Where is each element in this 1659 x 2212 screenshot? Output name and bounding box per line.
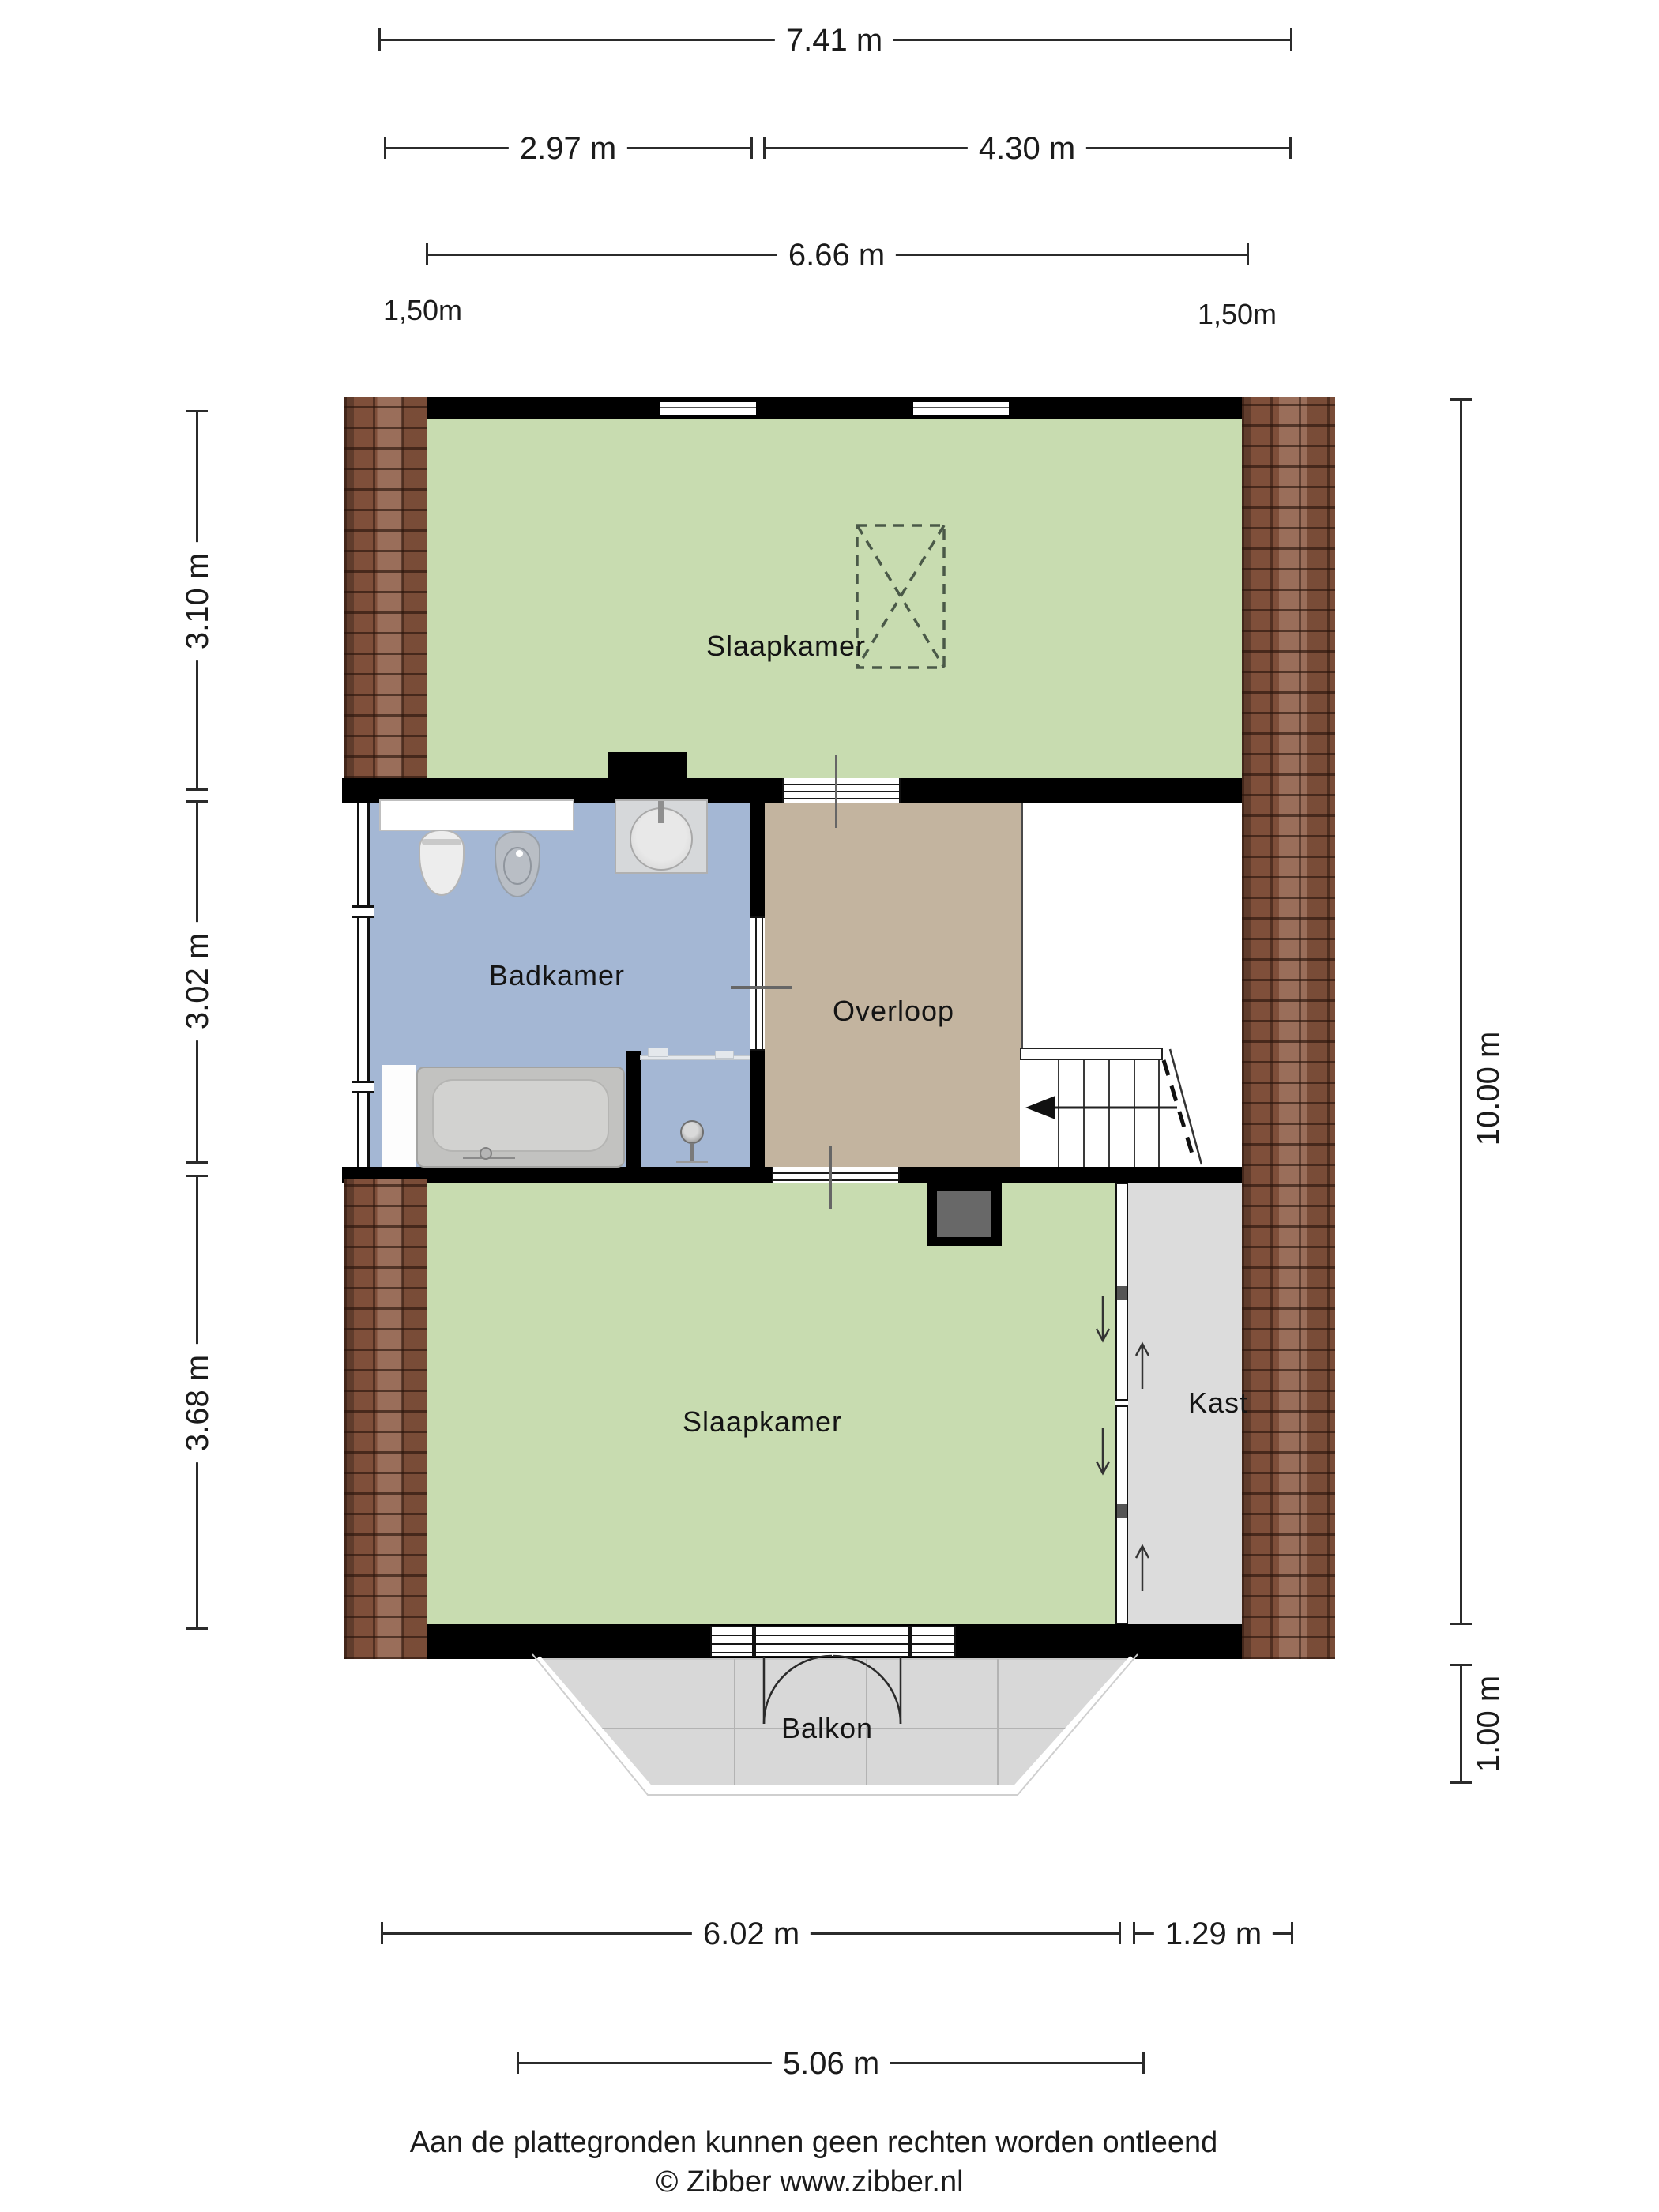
dim-label-top-total: 7.41 m [775,24,893,56]
window-top-2 [911,400,1011,417]
dim-label-bottom-balcony: 5.06 m [772,2048,890,2079]
bedroom-top-floor [427,419,1248,778]
dim-tick [384,137,386,159]
dim-tick [1119,1922,1121,1944]
wall-top [379,397,1292,419]
shower-valve-icon [715,1051,734,1059]
dim-tick [426,243,428,265]
dim-tick [1133,1922,1135,1944]
dim-tick [186,1175,208,1177]
room-label-bedroom-bottom: Slaapkamer [683,1408,842,1436]
landing-floor [765,803,1022,1167]
dim-label-right-total: 10.00 m [1473,1021,1504,1157]
dim-label-knee-right: 1,50m [1187,300,1288,329]
stairwell-edge [1021,803,1023,1049]
stair-tread [1134,1060,1135,1167]
door-bathroom [750,916,765,1051]
room-label-landing: Overloop [833,997,954,1025]
window-transom-1 [352,905,374,918]
door-mullion [752,1626,756,1657]
room-label-balcony: Balkon [781,1714,873,1743]
dim-tick [1291,1922,1293,1944]
door-handle-icon [1117,1504,1127,1518]
door-tick [835,755,837,828]
stairs-landing [1020,1048,1163,1060]
dim-label-right-balcony: 1.00 m [1473,1665,1504,1783]
roof-strip-left-bottom [344,1179,427,1659]
dim-line-right-balcony [1460,1665,1462,1783]
wall-bath-stub [626,1051,641,1167]
room-label-bathroom: Badkamer [489,961,625,990]
dim-tick [1289,137,1292,159]
dim-line-right-total [1460,399,1462,1625]
door-landing-top [782,778,901,803]
dim-label-left-2: 3.68 m [182,1344,213,1462]
dim-tick [186,1161,208,1164]
roof-strip-right [1242,397,1335,1659]
dim-tick [1247,243,1249,265]
door-landing-bottom [772,1167,900,1183]
dim-tick [1450,1781,1472,1784]
window-transom-2 [352,1081,374,1093]
dim-tick [763,137,766,159]
bathtub-drain-icon [480,1147,492,1160]
roof-strip-left-top [344,397,427,778]
stairs-icon [1020,1060,1163,1167]
stair-tread [1108,1060,1110,1167]
stair-tread [1158,1060,1160,1167]
shower-head-icon [680,1120,704,1144]
door-mullion [908,1626,912,1657]
dim-tick [186,410,208,412]
dim-tick [1142,2052,1145,2074]
door-tick [731,986,792,989]
dim-tick [1290,28,1292,51]
dim-label-top-inner: 6.66 m [777,239,896,271]
dim-label-left-1: 3.02 m [182,922,213,1040]
dim-label-left-0: 3.10 m [182,542,213,660]
stair-tread [1058,1060,1059,1167]
dim-label-top-right: 4.30 m [968,133,1086,164]
shower-base-icon [676,1161,708,1163]
dim-label-bottom-closet: 1.29 m [1154,1918,1273,1950]
stair-tread [1083,1060,1085,1167]
vanity-counter-icon [379,799,574,831]
floorplan-page: 7.41 m 2.97 m 4.30 m 6.66 m 1,50m 1,50m … [0,0,1659,2212]
door-handle-icon [1117,1286,1127,1300]
chimney-inner [937,1191,991,1237]
balcony-door-frame [710,1626,956,1657]
room-label-closet: Kast [1188,1389,1248,1417]
footer-disclaimer: Aan de plattegronden kunnen geen rechten… [410,2127,1218,2157]
dim-label-top-left: 2.97 m [509,133,627,164]
shower-hose-icon [690,1143,694,1161]
dim-tick [381,1922,383,1944]
dim-label-knee-left: 1,50m [372,296,473,325]
bedroom-bottom-floor [427,1183,1115,1624]
dim-tick [186,1627,208,1630]
room-label-bedroom-top: Slaapkamer [706,632,866,660]
dim-tick [1450,1664,1472,1666]
window-band-left [357,803,370,1167]
wall-stub-above-sink [608,752,687,803]
dim-label-bottom-main: 6.02 m [692,1918,811,1950]
window-top-1 [657,400,758,417]
bath-side-patch [382,1065,416,1167]
dim-tick [517,2052,519,2074]
dim-tick [186,788,208,791]
dim-tick [1450,398,1472,401]
footer-copyright: © Zibber www.zibber.nl [656,2167,963,2197]
bathtub-inner [432,1079,609,1152]
door-tick [829,1145,832,1209]
sink-faucet-icon [658,801,664,823]
dim-tick [378,28,381,51]
dim-tick [1450,1623,1472,1625]
shower-valve-icon [648,1048,668,1057]
dim-tick [186,800,208,803]
dim-tick [750,137,753,159]
